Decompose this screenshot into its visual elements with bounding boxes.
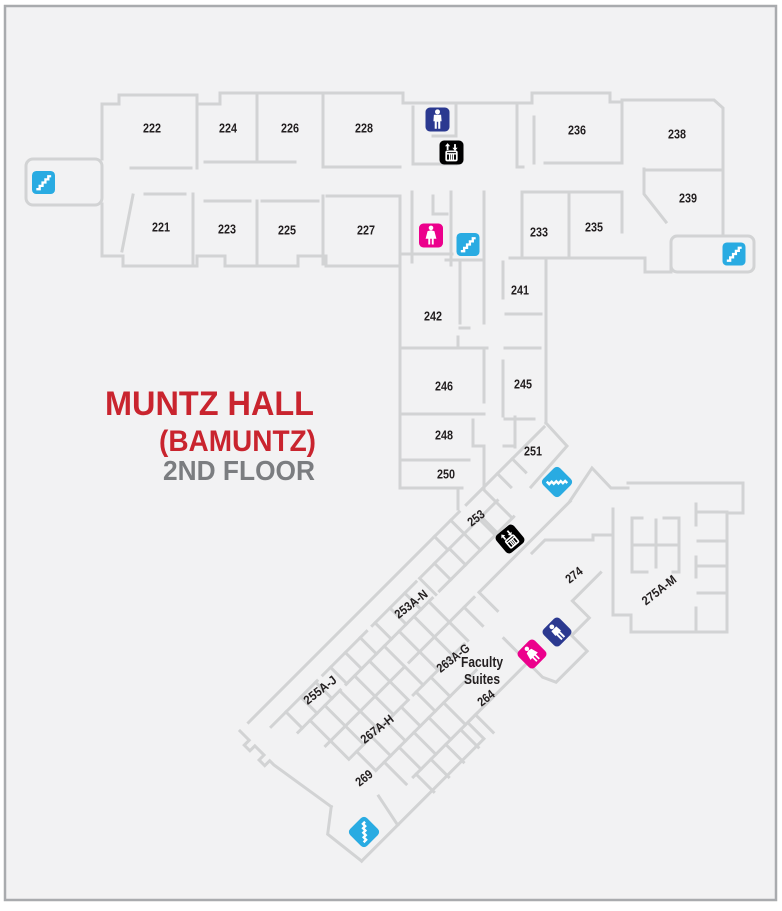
svg-text:2ND FLOOR: 2ND FLOOR [163, 455, 315, 486]
svg-text:223: 223 [218, 222, 236, 237]
svg-text:242: 242 [424, 309, 442, 324]
svg-text:241: 241 [511, 283, 529, 298]
svg-text:225: 225 [278, 223, 296, 238]
svg-text:222: 222 [143, 121, 161, 136]
svg-text:248: 248 [435, 428, 453, 443]
svg-text:(BAMUNTZ): (BAMUNTZ) [159, 425, 316, 458]
svg-text:246: 246 [435, 379, 453, 394]
svg-text:226: 226 [281, 121, 299, 136]
svg-text:Faculty: Faculty [461, 655, 503, 671]
svg-text:227: 227 [357, 223, 375, 238]
svg-text:221: 221 [152, 220, 170, 235]
svg-text:245: 245 [514, 377, 532, 392]
svg-text:228: 228 [355, 121, 373, 136]
svg-text:224: 224 [219, 121, 238, 136]
svg-text:233: 233 [530, 225, 548, 240]
svg-text:Suites: Suites [464, 672, 500, 688]
svg-text:239: 239 [679, 191, 697, 206]
svg-text:250: 250 [437, 467, 455, 482]
svg-text:251: 251 [524, 444, 542, 459]
svg-text:235: 235 [585, 220, 603, 235]
svg-text:236: 236 [568, 123, 586, 138]
svg-text:238: 238 [668, 127, 686, 142]
svg-text:MUNTZ HALL: MUNTZ HALL [105, 385, 314, 423]
